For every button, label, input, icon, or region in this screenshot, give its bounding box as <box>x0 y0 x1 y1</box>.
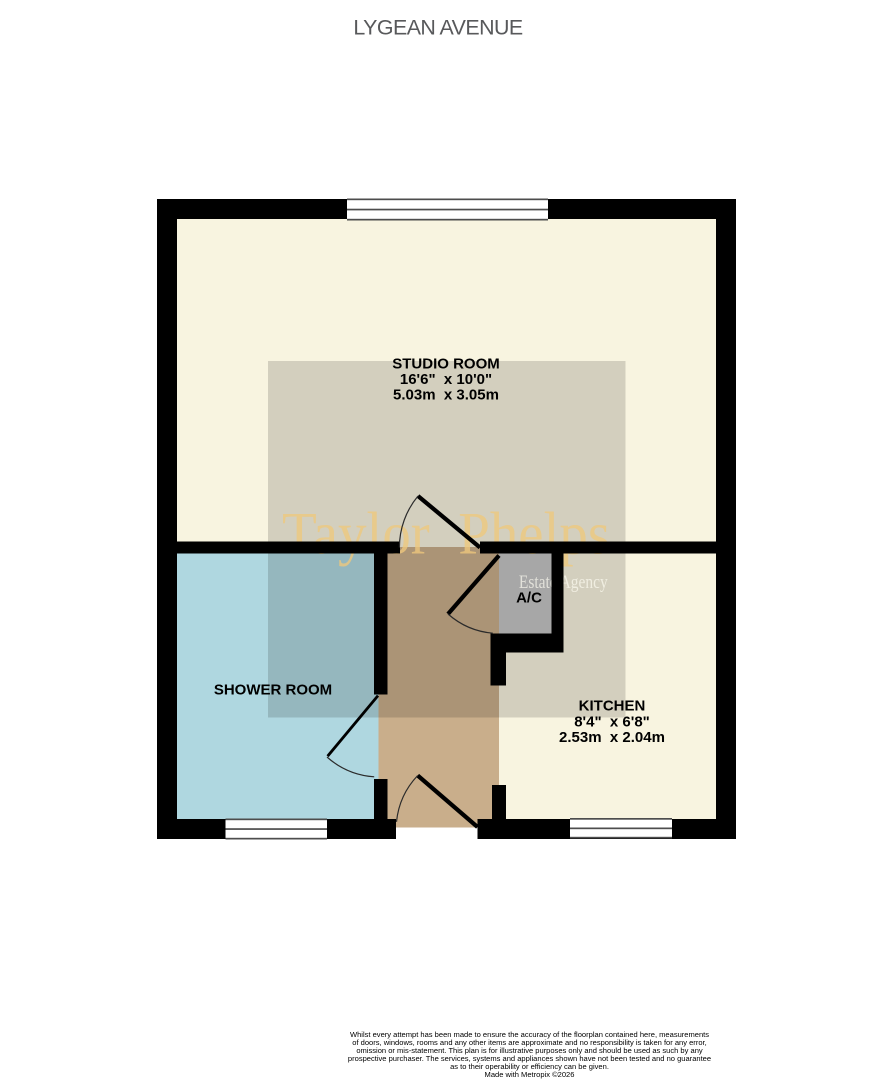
svg-text:Made with Metropix ©2026: Made with Metropix ©2026 <box>485 1070 575 1079</box>
svg-text:LYGEAN AVENUE: LYGEAN AVENUE <box>353 16 522 40</box>
svg-text:SHOWER ROOM: SHOWER ROOM <box>214 681 332 698</box>
svg-text:KITCHEN: KITCHEN <box>579 698 646 715</box>
svg-text:8'4" x 6'8": 8'4" x 6'8" <box>574 713 650 730</box>
svg-text:16'6" x 10'0": 16'6" x 10'0" <box>400 371 492 388</box>
svg-text:2.53m x 2.04m: 2.53m x 2.04m <box>559 729 665 746</box>
svg-text:5.03m x 3.05m: 5.03m x 3.05m <box>393 387 499 404</box>
svg-text:STUDIO ROOM: STUDIO ROOM <box>392 355 500 372</box>
svg-text:A/C: A/C <box>516 590 542 607</box>
